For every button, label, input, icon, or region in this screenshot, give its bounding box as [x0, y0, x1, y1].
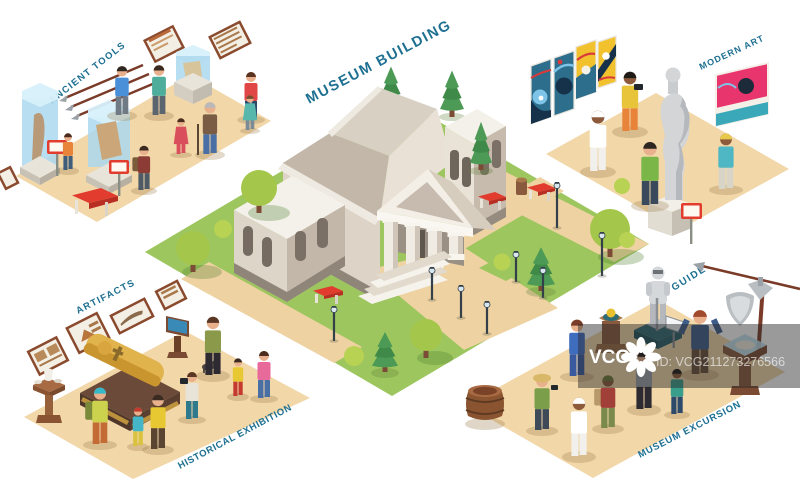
svg-text:ID: VCG211273276566: ID: VCG211273276566	[656, 355, 785, 369]
